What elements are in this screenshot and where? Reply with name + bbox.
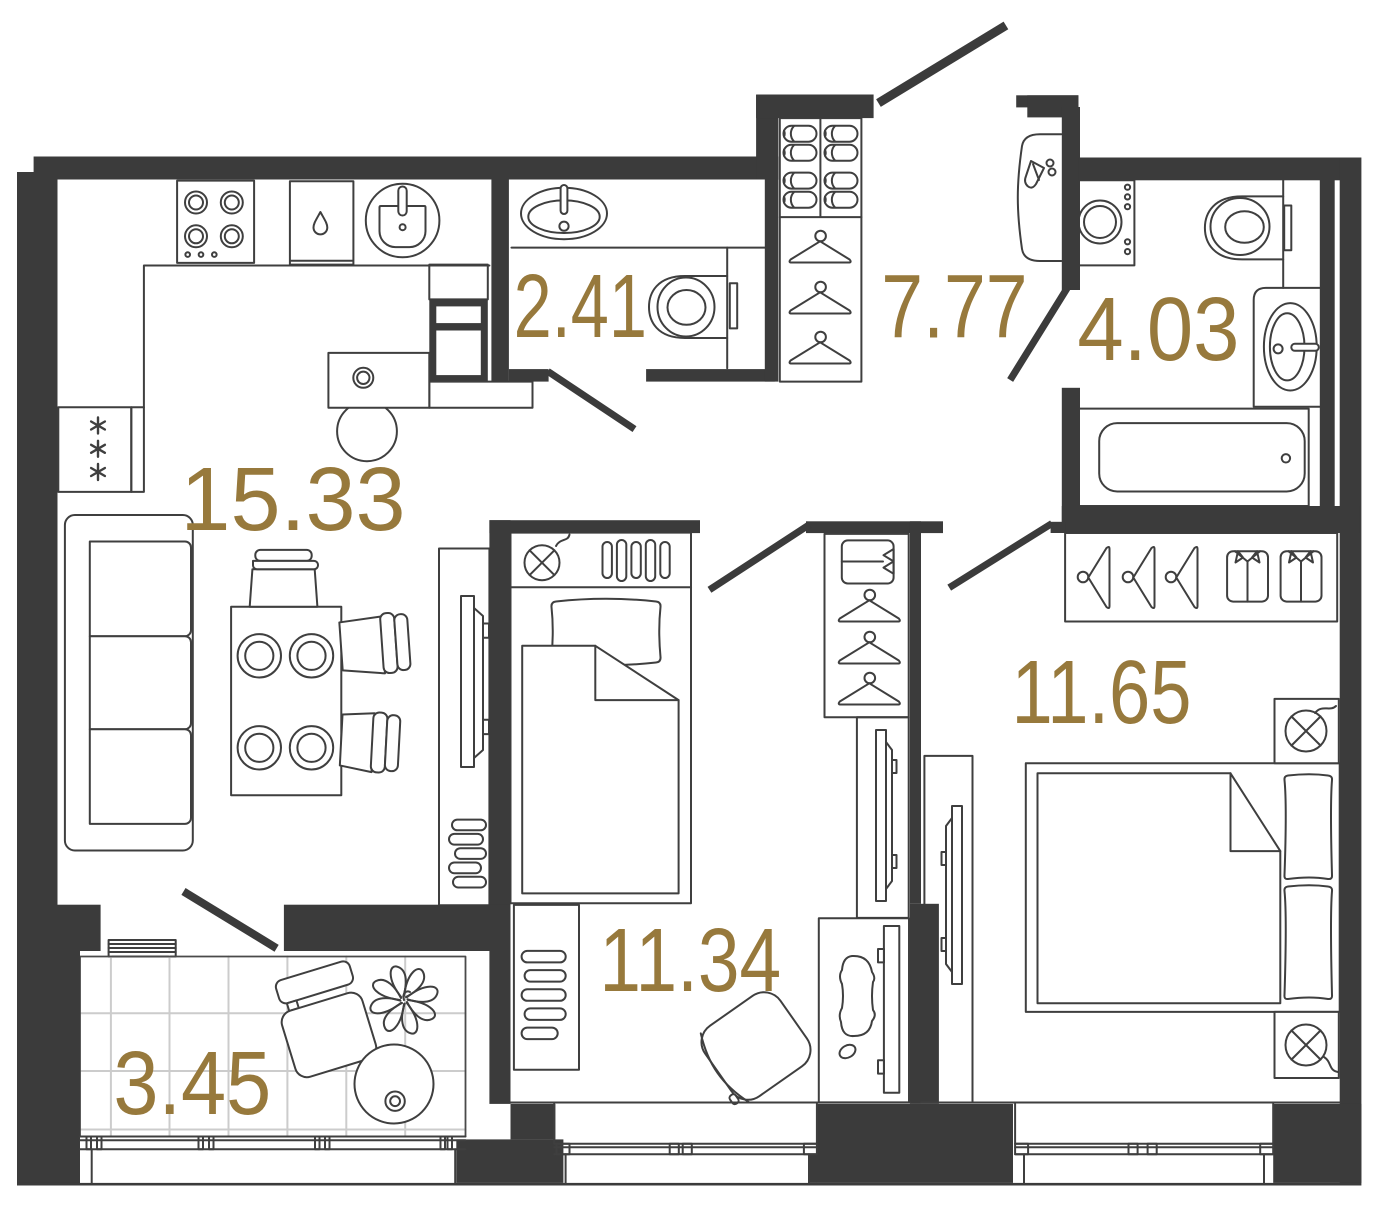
svg-text:4.03: 4.03 [1077, 280, 1239, 380]
svg-text:11.34: 11.34 [599, 909, 781, 1010]
svg-text:2.41: 2.41 [514, 256, 647, 356]
svg-text:7.77: 7.77 [881, 256, 1027, 357]
svg-text:11.65: 11.65 [1011, 642, 1191, 742]
svg-text:3.45: 3.45 [113, 1033, 271, 1134]
svg-text:15.33: 15.33 [180, 450, 405, 550]
